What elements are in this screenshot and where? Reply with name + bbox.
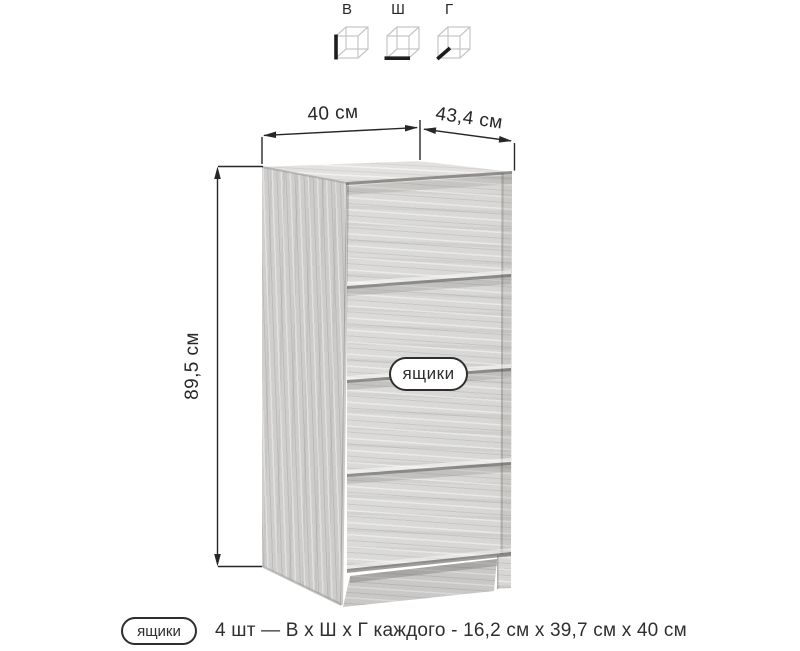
depth-dimension-line (424, 129, 511, 141)
top-edge-shadow (0, 0, 800, 651)
drawers-tag: ящики (389, 357, 468, 391)
legend-highlight-edges (336, 35, 450, 60)
cabinet-front-face (0, 0, 800, 651)
drawer-gap (0, 0, 800, 651)
foot-edge (0, 0, 800, 651)
cabinet-plinth (0, 0, 800, 651)
cube-depth-icon (438, 27, 470, 58)
right-side-line (0, 0, 800, 651)
plinth-shadow (0, 0, 800, 651)
depth-dimension-label: 43,4 см (418, 101, 520, 137)
drawer-gap (0, 0, 800, 651)
cube-width-icon (387, 27, 419, 58)
arrowhead (214, 554, 221, 567)
arrowheads (214, 125, 512, 567)
drawer-gap (0, 0, 800, 651)
drawer-gap (0, 0, 800, 651)
height-dimension-label: 89,5 см (182, 321, 204, 411)
legend-label-width: Ш (383, 1, 413, 18)
top-left-edge (0, 0, 800, 651)
drawer-gap (0, 0, 800, 651)
cabinet-right-foot (0, 0, 800, 651)
cabinet-top-face (0, 0, 800, 651)
legend-label-height: В (332, 1, 362, 18)
depth-edge-mark (437, 48, 450, 59)
drawer-gap (0, 0, 800, 651)
bottom-drawer-edge (0, 0, 800, 651)
legend-label-depth: Г (434, 1, 464, 18)
front-corner-edge (0, 0, 800, 651)
arrowhead (214, 167, 221, 180)
footer-description: 4 шт — В х Ш х Г каждого - 16,2 см х 39,… (215, 620, 687, 642)
drawer-gap (0, 0, 800, 651)
width-dimension-label: 40 см (287, 101, 378, 128)
dimension-overlay (0, 0, 800, 651)
footer-drawers-tag: ящики (121, 617, 197, 645)
side-bottom-edge (0, 0, 800, 651)
arrowhead (405, 125, 418, 132)
legend-cubes (336, 27, 470, 58)
bottom-drawer-edge (0, 0, 800, 651)
drawer-gap (0, 0, 800, 651)
arrowhead (263, 132, 276, 139)
cabinet-side-panel (0, 0, 800, 651)
cube-height-icon (336, 27, 368, 58)
dimension-lines (218, 120, 515, 567)
right-side-strip (0, 0, 800, 651)
product-dimension-diagram: В Ш Г 40 см 43,4 см 89,5 см ящики ящики … (0, 0, 800, 651)
drawer-gap (0, 0, 800, 651)
top-front-edge (0, 0, 800, 651)
arrowhead (499, 136, 512, 143)
arrowhead (423, 127, 436, 134)
width-dimension-line (264, 128, 417, 136)
